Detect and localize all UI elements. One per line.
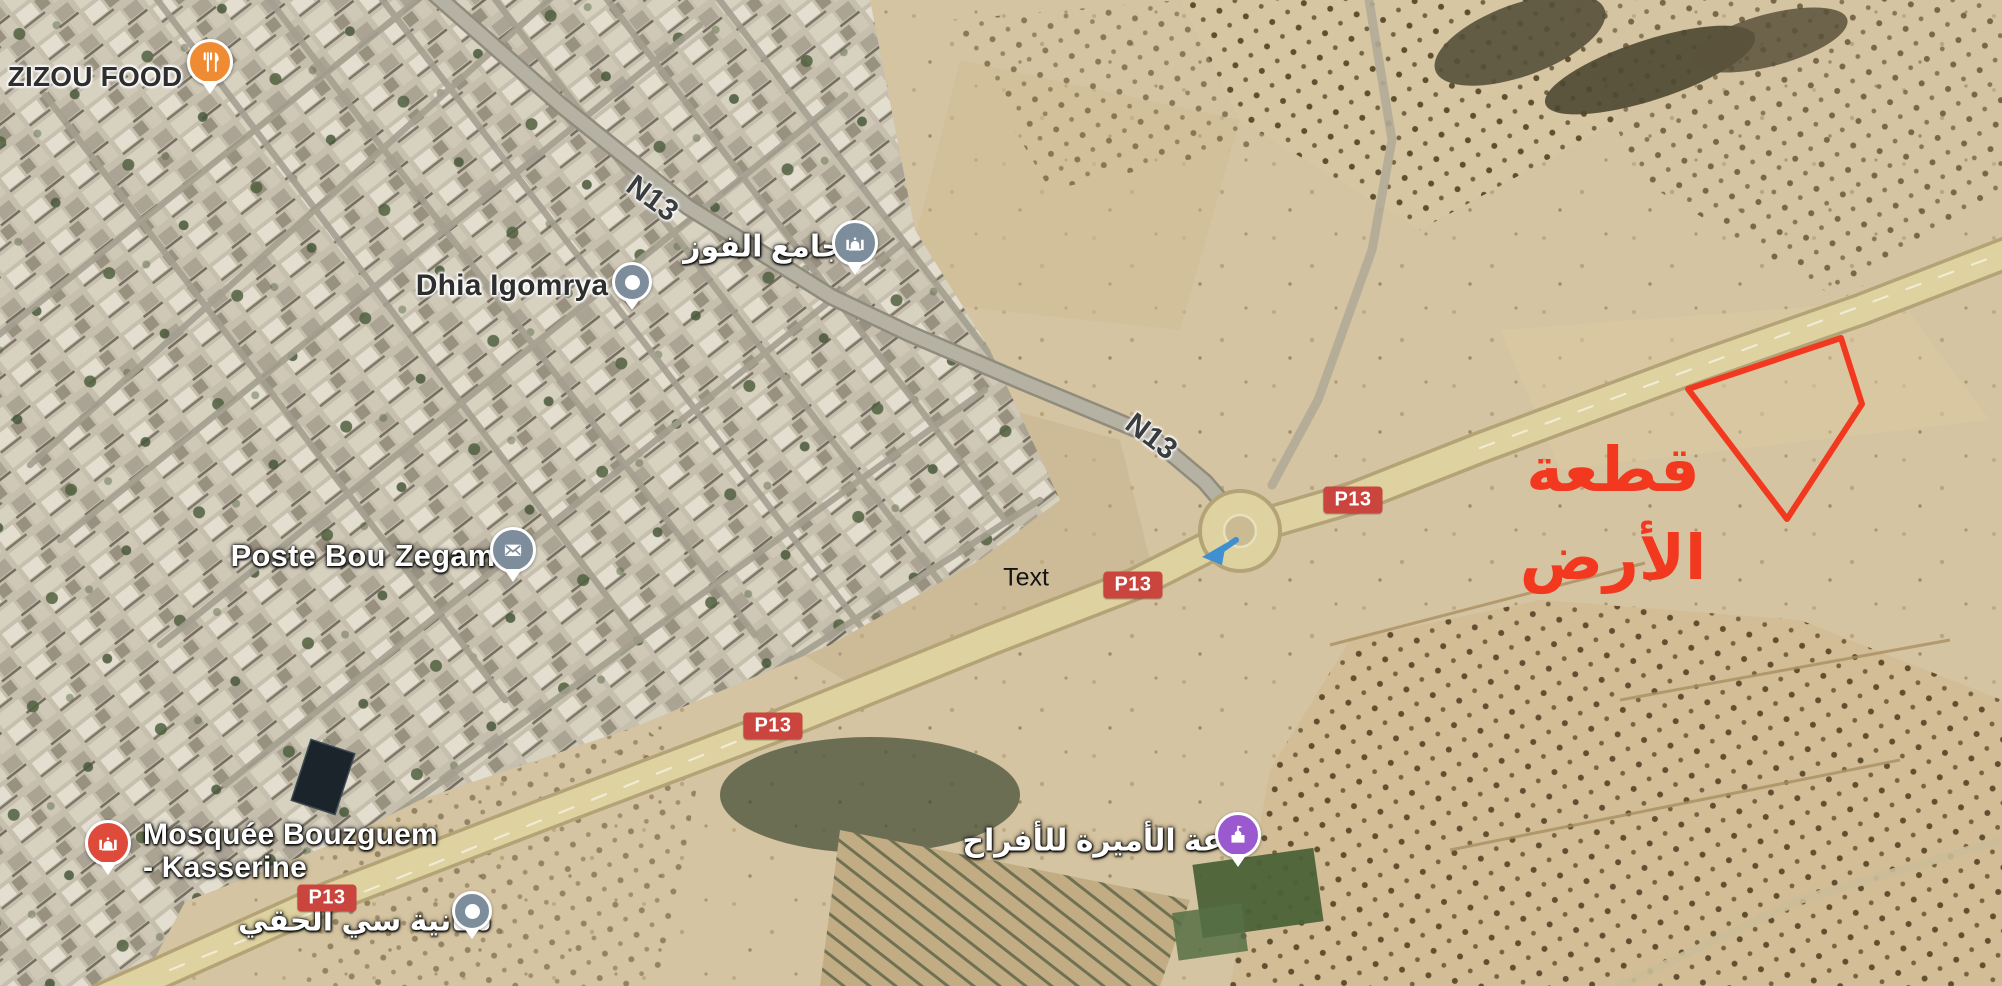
- label-qaat-elamira[interactable]: قاعة الأميرة للأفراح: [962, 824, 1253, 859]
- pin-sania-si-elhaqi[interactable]: [452, 891, 492, 931]
- label-mosquee-line1: Mosquée Bouzguem: [143, 818, 438, 851]
- label-mosquee-line2: - Kasserine: [143, 851, 438, 884]
- land-parcel-label-line2: الأرض: [1520, 514, 1707, 602]
- restaurant-icon: [187, 39, 233, 85]
- mosque-icon: [832, 220, 878, 266]
- road-badge-p13-b: P13: [1103, 572, 1162, 599]
- road-badge-p13-d: P13: [297, 885, 356, 912]
- road-badge-p13-c: P13: [743, 713, 802, 740]
- road-badge-p13-a: P13: [1323, 487, 1382, 514]
- pin-zizou-food[interactable]: [187, 39, 233, 85]
- label-dhia-igomrya[interactable]: Dhia Igomrya: [416, 269, 608, 303]
- pin-poste-bou-zegam[interactable]: [490, 527, 536, 573]
- dot-icon: [452, 891, 492, 931]
- land-parcel-label-line1: قطعة: [1520, 426, 1707, 514]
- text-note: Text: [1003, 564, 1049, 593]
- event-icon: [1215, 812, 1261, 858]
- pin-mosquee-bouzguem[interactable]: [85, 820, 131, 866]
- pin-qaat-elamira[interactable]: [1215, 812, 1261, 858]
- pin-dhia-igomrya[interactable]: [612, 262, 652, 302]
- mosque-icon: [85, 820, 131, 866]
- satellite-map[interactable]: قطعة الأرض: [0, 0, 2002, 986]
- land-parcel-label: قطعة الأرض: [1520, 426, 1707, 602]
- label-zizou-food[interactable]: ZIZOU FOOD: [8, 61, 183, 93]
- label-mosquee-bouzguem[interactable]: Mosquée Bouzguem - Kasserine: [143, 818, 438, 884]
- label-poste-bou-zegam[interactable]: Poste Bou Zegam: [231, 538, 496, 574]
- dot-icon: [612, 262, 652, 302]
- mail-icon: [490, 527, 536, 573]
- label-jamaa-elfaouz[interactable]: جامع الفوز: [683, 230, 843, 265]
- pin-jamaa-elfaouz[interactable]: [832, 220, 878, 266]
